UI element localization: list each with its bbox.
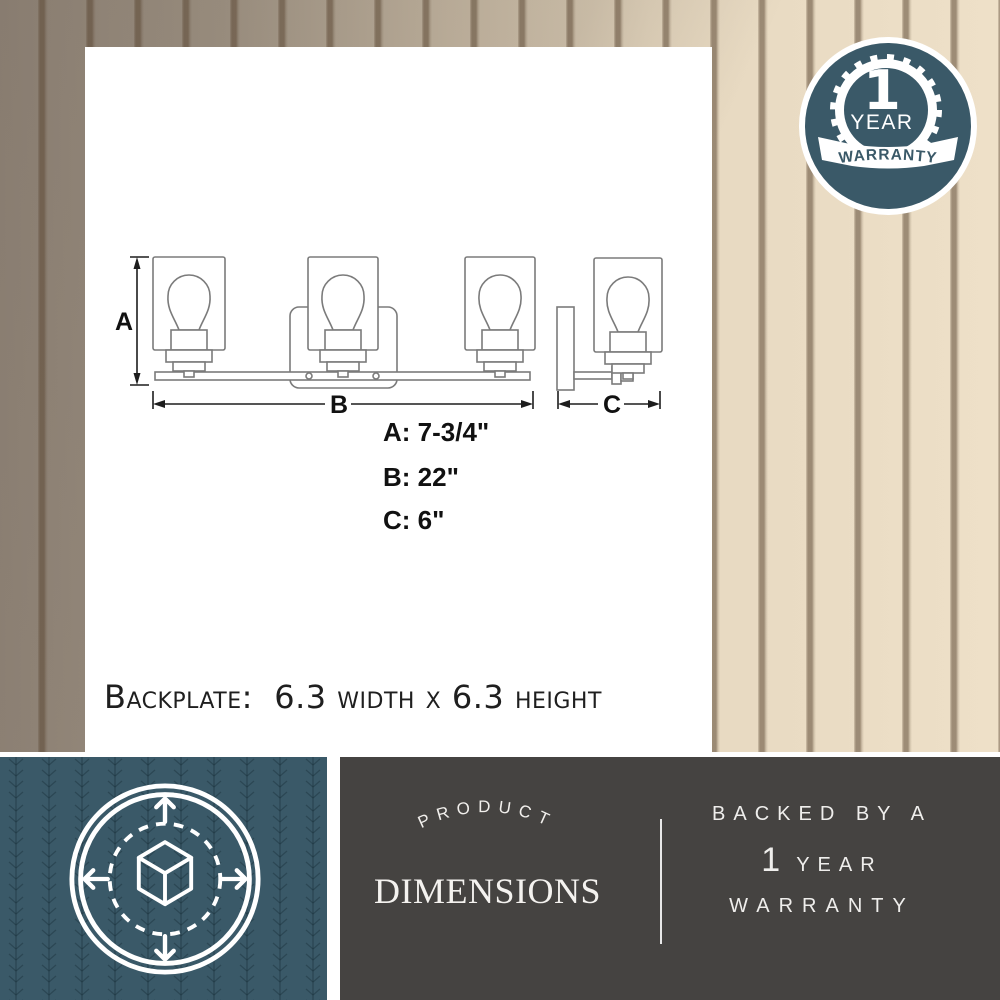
backplate-size-note: Backplate: 6.3 width x 6.3 height <box>104 678 602 716</box>
backed-by-line: BACKED BY A <box>677 803 967 826</box>
warranty-text-block: BACKED BY A 1 YEAR WARRANTY <box>677 803 967 918</box>
badge-year-word: YEAR <box>850 111 913 134</box>
dim-value-a: A: 7-3/4" <box>383 417 489 448</box>
side-arm <box>574 372 612 379</box>
footer-text-panel: PRODUCT DIMENSIONS BACKED BY A 1 YEAR WA… <box>340 757 1000 1000</box>
svg-text:PRODUCT: PRODUCT <box>415 797 559 832</box>
product-word: PRODUCT <box>415 797 559 832</box>
dimension-a: A <box>115 257 149 385</box>
3d-box-arrows-icon <box>68 782 262 976</box>
footer-divider <box>660 819 662 944</box>
year-number: 1 <box>761 841 780 880</box>
diagram-panel: A B C A: 7-3/4" <box>85 47 712 753</box>
warranty-word: WARRANTY <box>677 895 967 918</box>
vanity-fixture-line-drawing: A B C <box>85 47 712 753</box>
dimension-b: B <box>153 391 533 419</box>
product-arched-text: PRODUCT <box>372 773 602 853</box>
side-wall-plate <box>557 307 574 390</box>
dimensions-icon-tile <box>0 757 327 1000</box>
dim-c-letter: C <box>603 391 621 419</box>
cube-glyph <box>139 842 191 904</box>
product-dimensions-graphic: A B C A: 7-3/4" <box>0 0 1000 1000</box>
side-view <box>557 258 662 390</box>
year-word: YEAR <box>796 854 882 877</box>
one-year-warranty-badge: 1 YEAR WARRANTY <box>798 36 978 216</box>
dimensions-word: DIMENSIONS <box>340 870 635 912</box>
dim-b-letter: B <box>330 391 348 419</box>
dim-value-c: C: 6" <box>383 505 444 536</box>
front-view <box>153 257 535 388</box>
footer-bar: PRODUCT DIMENSIONS BACKED BY A 1 YEAR WA… <box>0 752 1000 1000</box>
dim-a-letter: A <box>115 308 133 336</box>
dim-value-b: B: 22" <box>383 462 459 493</box>
dimension-c: C <box>558 391 660 419</box>
